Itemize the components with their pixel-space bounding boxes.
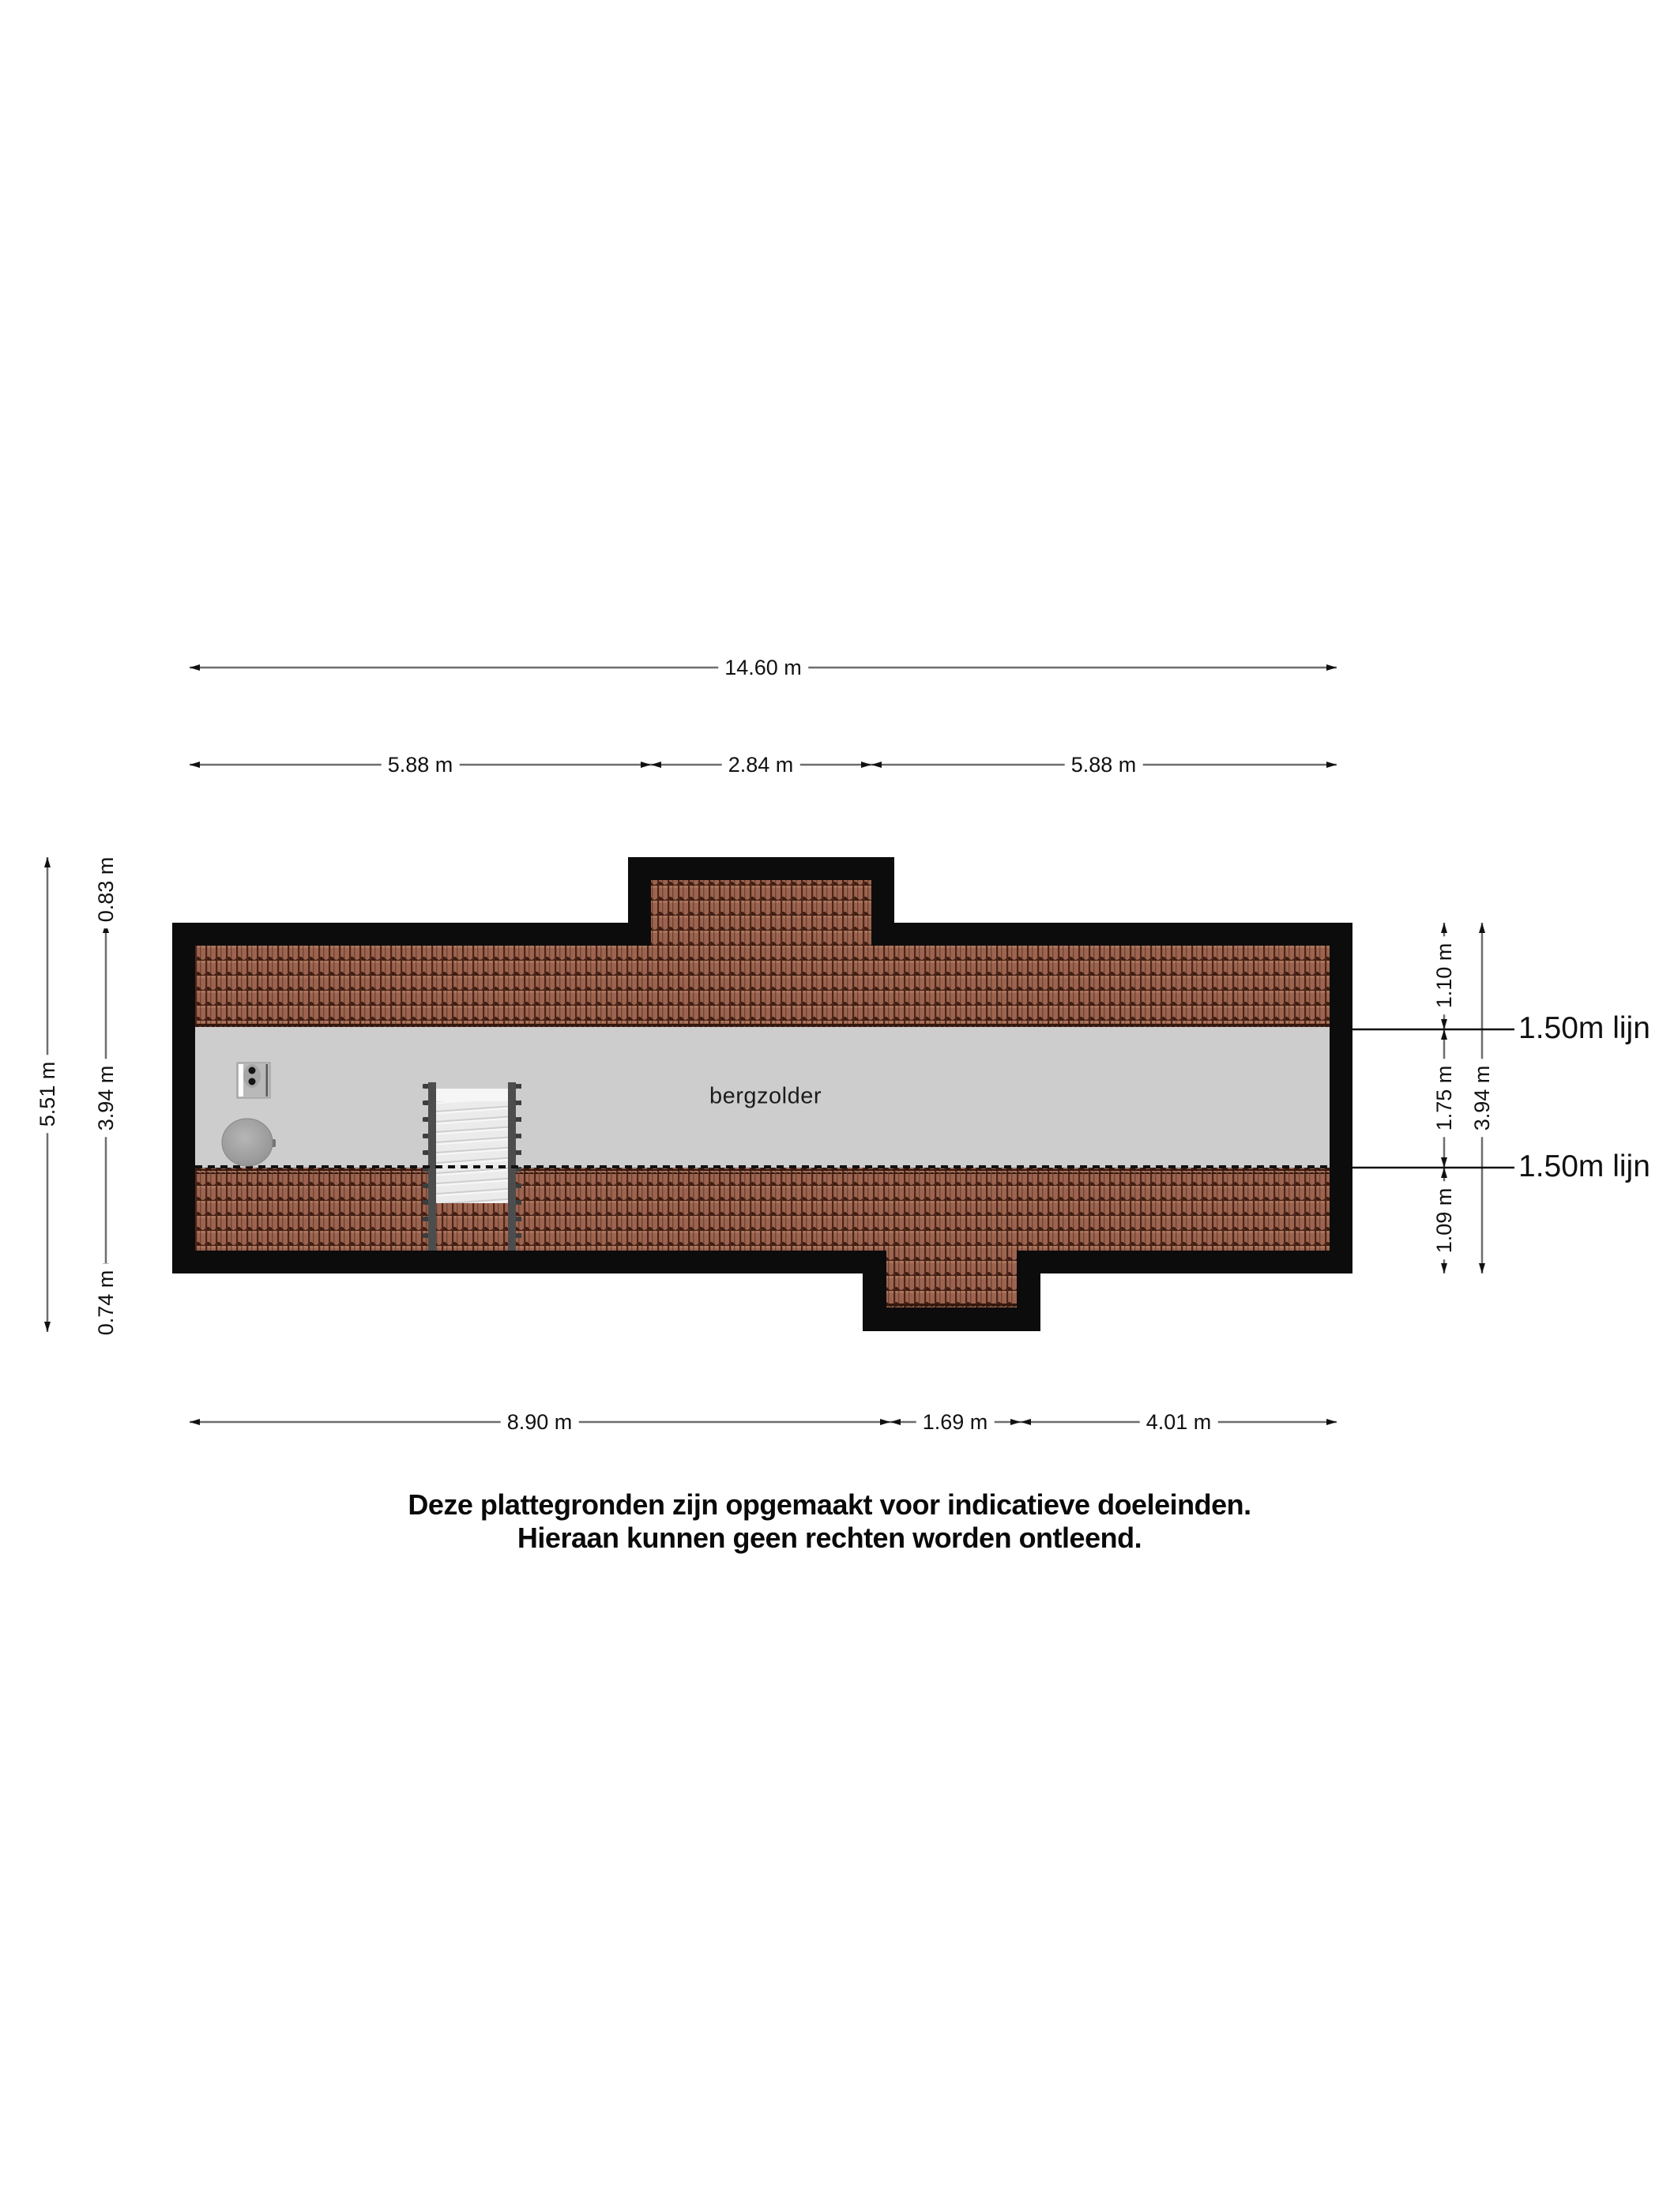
dim-label-right-middle: 1.75 m [1431, 1059, 1457, 1138]
roof-tiles-bottom-edge [195, 1169, 1330, 1174]
wall-bottom [172, 1251, 1352, 1273]
dim-label-left-top: 0.83 m [93, 851, 118, 929]
room-label: bergzolder [709, 1084, 822, 1110]
boiler-right-line [266, 1064, 269, 1097]
dim-label-bottom-left: 8.90 m [501, 1409, 579, 1435]
boiler-dot-top [249, 1067, 256, 1074]
wall-left [172, 923, 195, 1273]
stair-top-landing [436, 1089, 508, 1101]
water-tank-body [222, 1119, 273, 1166]
dim-label-left-middle: 3.94 m [93, 1059, 118, 1138]
floor-plan-page: 14.60 m 5.88 m 2.84 m 5.88 m 8.90 m 1.69… [0, 0, 1659, 2212]
roof-tiles-bottom-dormer [886, 1251, 1017, 1307]
dim-label-top-middle: 2.84 m [722, 752, 800, 777]
headroom-label-bottom: 1.50m lijn [1518, 1149, 1650, 1184]
wall-right [1330, 923, 1352, 1273]
roof-tiles-top-band [195, 946, 1330, 1027]
boiler-dot-bottom [249, 1078, 256, 1085]
disclaimer: Deze plattegronden zijn opgemaakt voor i… [0, 1488, 1659, 1555]
dim-label-bottom-right: 4.01 m [1140, 1409, 1218, 1435]
boiler-unit [237, 1063, 270, 1098]
dim-label-top-right: 5.88 m [1065, 752, 1143, 777]
stair-treads [436, 1089, 508, 1203]
dim-label-total-width: 14.60 m [718, 655, 808, 680]
roof-tiles-bottom-dormer-edge [886, 1303, 1017, 1308]
dim-label-left-total: 5.51 m [35, 1055, 60, 1134]
floor-plan-drawing [0, 0, 1659, 2212]
dim-label-left-bottom: 0.74 m [93, 1264, 118, 1342]
disclaimer-line-2: Hieraan kunnen geen rechten worden ontle… [0, 1522, 1659, 1555]
headroom-label-top: 1.50m lijn [1518, 1011, 1650, 1046]
dim-label-right-bottom: 1.09 m [1431, 1182, 1457, 1260]
boiler-left-strip [239, 1064, 243, 1097]
dim-label-top-left: 5.88 m [382, 752, 460, 777]
dim-label-bottom-middle: 1.69 m [916, 1409, 995, 1435]
dim-label-right-top: 1.10 m [1431, 937, 1457, 1015]
disclaimer-line-1: Deze plattegronden zijn opgemaakt voor i… [0, 1488, 1659, 1522]
dim-label-right-total: 3.94 m [1469, 1059, 1495, 1138]
roof-tiles-bottom-band [195, 1168, 1330, 1251]
